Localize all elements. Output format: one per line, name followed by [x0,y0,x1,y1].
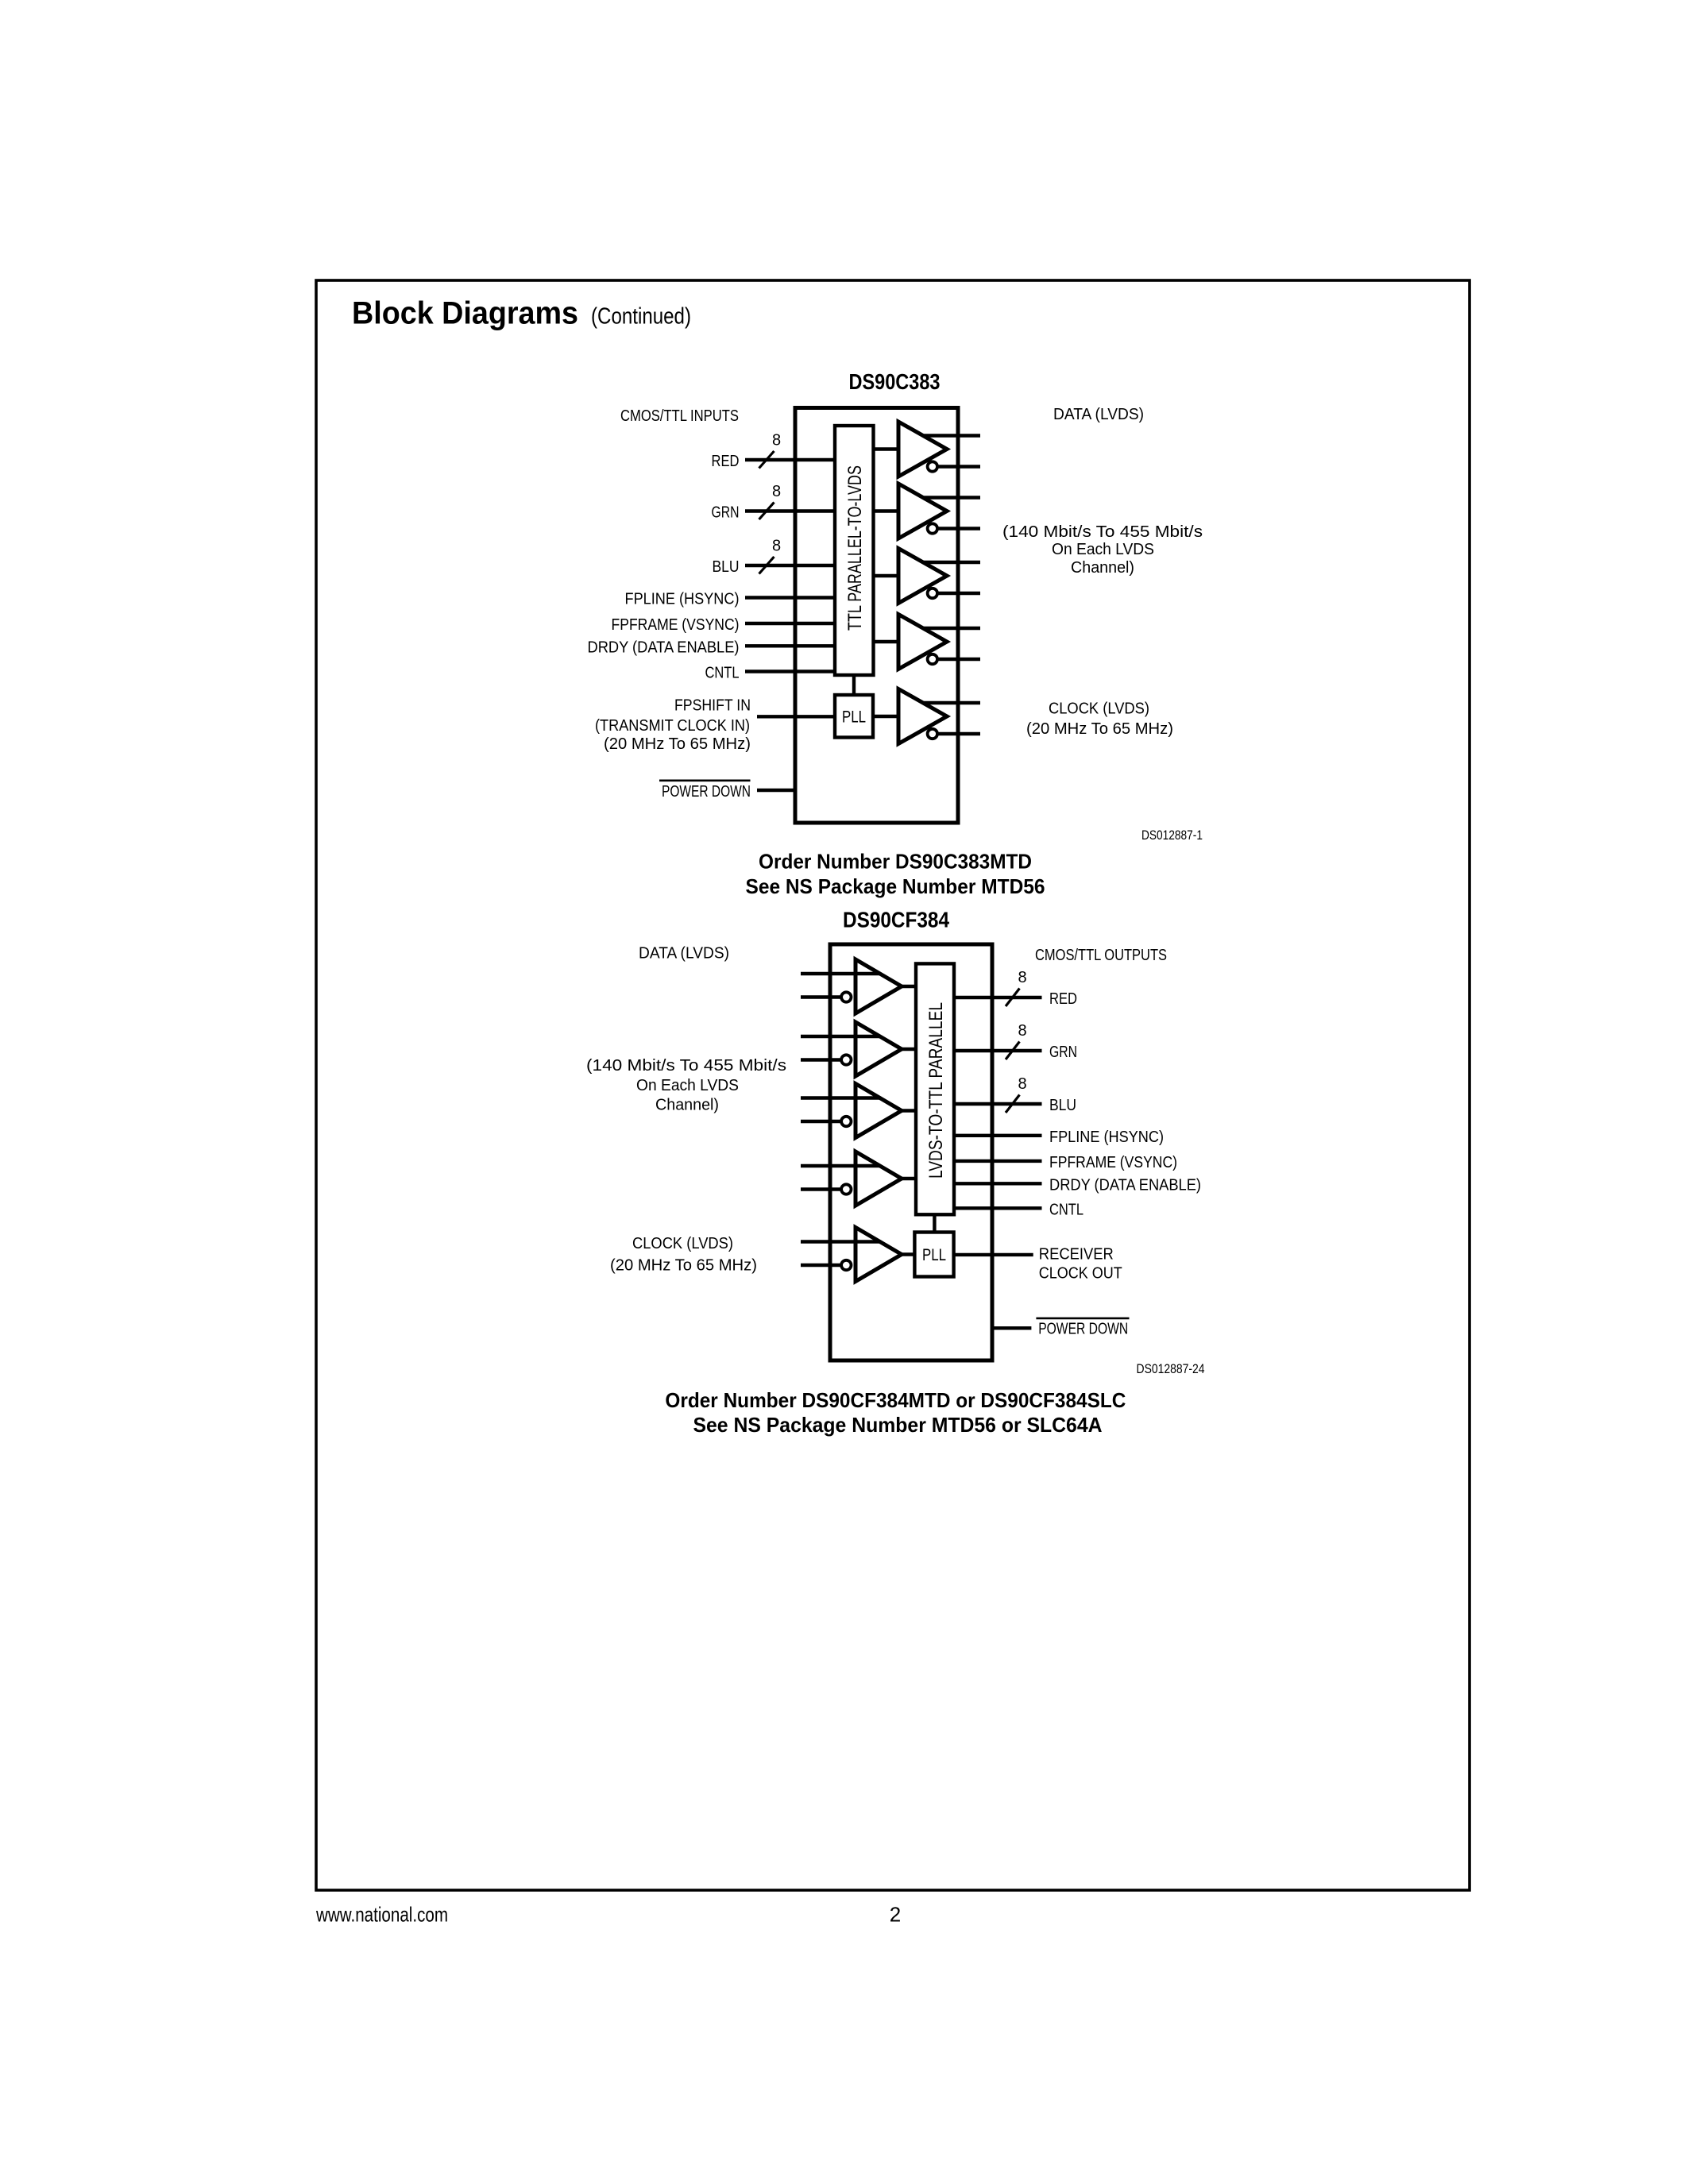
svg-text:DS90C383: DS90C383 [849,369,941,394]
svg-text:8: 8 [772,538,781,555]
svg-text:Channel): Channel) [655,1097,719,1114]
svg-text:FPLINE (HSYNC): FPLINE (HSYNC) [625,591,740,608]
svg-text:DRDY (DATA ENABLE): DRDY (DATA ENABLE) [588,639,740,656]
svg-text:(20 MHz To 65 MHz): (20 MHz To 65 MHz) [610,1257,757,1275]
svg-text:CLOCK (LVDS): CLOCK (LVDS) [1049,700,1149,718]
svg-text:(TRANSMIT CLOCK IN): (TRANSMIT CLOCK IN) [595,717,750,735]
svg-text:www.national.com: www.national.com [315,1903,448,1927]
svg-text:GRN: GRN [1049,1044,1077,1061]
svg-text:(140 Mbit/s To 455 Mbit/s: (140 Mbit/s To 455 Mbit/s [1002,523,1203,541]
svg-text:(20 MHz To 65 MHz): (20 MHz To 65 MHz) [1026,720,1173,738]
svg-text:2: 2 [890,1903,901,1927]
svg-text:(20 MHz To 65 MHz): (20 MHz To 65 MHz) [604,735,751,753]
svg-text:BLU: BLU [1049,1097,1076,1114]
svg-text:BLU: BLU [713,558,740,576]
svg-text:CNTL: CNTL [1049,1201,1083,1218]
svg-text:DS012887-24: DS012887-24 [1137,1362,1205,1376]
svg-text:RED: RED [712,453,740,470]
svg-text:CMOS/TTL INPUTS: CMOS/TTL INPUTS [620,407,739,425]
svg-text:DATA (LVDS): DATA (LVDS) [639,945,729,963]
svg-text:POWER DOWN: POWER DOWN [662,783,751,801]
svg-text:DATA (LVDS): DATA (LVDS) [1053,406,1144,423]
svg-text:8: 8 [772,483,781,500]
svg-text:RED: RED [1049,990,1077,1008]
svg-text:On Each LVDS: On Each LVDS [636,1077,739,1094]
svg-text:(140 Mbit/s To 455 Mbit/s: (140 Mbit/s To 455 Mbit/s [586,1057,786,1075]
svg-text:POWER DOWN: POWER DOWN [1038,1321,1128,1338]
svg-text:DS012887-1: DS012887-1 [1141,828,1203,843]
svg-text:GRN: GRN [712,504,740,522]
svg-text:PLL: PLL [842,708,866,726]
svg-text:DRDY (DATA ENABLE): DRDY (DATA ENABLE) [1049,1176,1201,1194]
svg-text:Channel): Channel) [1071,559,1134,577]
svg-text:LVDS-TO-TTL PARALLEL: LVDS-TO-TTL PARALLEL [925,1002,947,1179]
svg-text:8: 8 [772,432,781,450]
svg-text:FPFRAME (VSYNC): FPFRAME (VSYNC) [1049,1154,1177,1171]
svg-text:FPSHIFT IN: FPSHIFT IN [674,697,751,715]
svg-text:Order Number DS90CF384MTD or D: Order Number DS90CF384MTD or DS90CF384SL… [665,1388,1126,1412]
svg-text:TTL PARALLEL-TO-LVDS: TTL PARALLEL-TO-LVDS [844,465,866,631]
svg-text:DS90CF384: DS90CF384 [843,908,949,932]
svg-text:CNTL: CNTL [705,665,740,682]
svg-text:Order Number DS90C383MTD: Order Number DS90C383MTD [759,850,1032,874]
svg-text:8: 8 [1018,969,1026,986]
svg-text:Block Diagrams: Block Diagrams [352,296,578,331]
svg-text:On Each LVDS: On Each LVDS [1052,541,1154,558]
svg-text:8: 8 [1018,1022,1026,1040]
svg-text:CLOCK (LVDS): CLOCK (LVDS) [632,1235,733,1252]
svg-text:See NS Package Number MTD56 or: See NS Package Number MTD56 or SLC64A [693,1413,1103,1437]
svg-text:PLL: PLL [922,1246,946,1264]
svg-text:FPLINE (HSYNC): FPLINE (HSYNC) [1049,1129,1164,1146]
svg-text:CMOS/TTL OUTPUTS: CMOS/TTL OUTPUTS [1035,947,1167,964]
svg-text:(Continued): (Continued) [591,304,691,330]
svg-text:CLOCK OUT: CLOCK OUT [1039,1265,1122,1283]
svg-text:8: 8 [1018,1075,1026,1093]
svg-text:See NS Package Number MTD56: See NS Package Number MTD56 [746,874,1045,898]
svg-text:FPFRAME (VSYNC): FPFRAME (VSYNC) [612,616,740,634]
svg-text:RECEIVER: RECEIVER [1039,1246,1114,1264]
